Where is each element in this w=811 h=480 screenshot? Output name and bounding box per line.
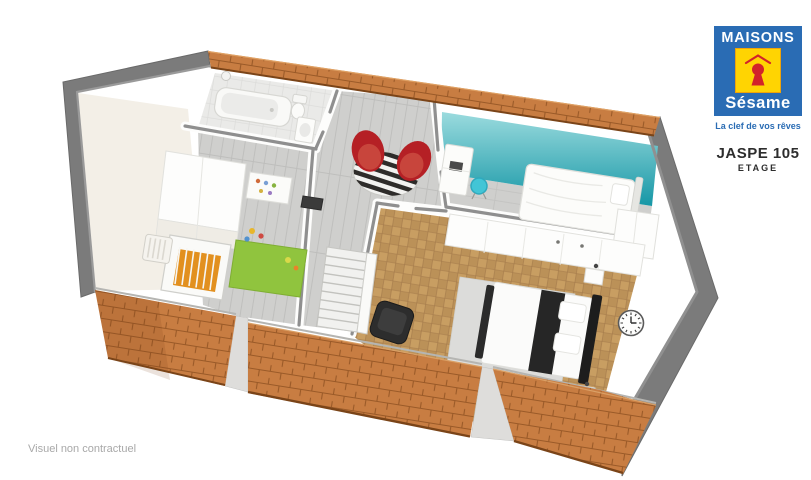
logo-tagline: La clef de vos rêves: [706, 121, 810, 131]
bedside-lamp: [594, 264, 598, 268]
page: { "window": {"width": 811, "height": 480…: [0, 0, 811, 480]
logo-word-sesame: Sésame: [725, 95, 790, 112]
toy: [294, 266, 299, 271]
wall-lamp: [580, 244, 584, 248]
child-wardrobe-top: [158, 151, 246, 232]
washbasin: [294, 117, 316, 144]
model-name: JASPE 105: [706, 145, 810, 162]
bedside-lamp: [585, 382, 589, 386]
teal-desk-chair: [471, 178, 487, 194]
logo-yellow-square: [735, 48, 781, 93]
radiator-body: [142, 234, 173, 264]
wall-lamp: [556, 240, 560, 244]
nightstand: [584, 268, 604, 285]
pillow: [553, 333, 582, 355]
pillow: [558, 301, 587, 323]
keyhole-circle: [752, 64, 764, 76]
door-mat: [301, 196, 323, 210]
keyhole-stem: [752, 75, 765, 86]
radiator: [142, 234, 173, 264]
toy: [249, 228, 255, 234]
toy: [268, 191, 272, 195]
roof-outline: [746, 56, 770, 64]
pillow: [610, 183, 630, 205]
toy: [258, 233, 263, 238]
toilet-tank: [292, 94, 307, 104]
toy: [285, 257, 291, 263]
brand-block: MAISONS Sésame La clef de vos rêves JASP…: [706, 26, 810, 173]
toy-shelf: [246, 172, 292, 204]
toy: [259, 189, 263, 193]
toy: [272, 183, 276, 187]
keyhole-icon: [738, 50, 778, 90]
shower-head: [222, 72, 231, 81]
toy: [244, 236, 249, 241]
floorplan-3d-render: [0, 0, 811, 480]
disclaimer-text: Visuel non contractuel: [28, 443, 136, 455]
model-floor-label: ETAGE: [706, 163, 810, 173]
logo-word-maisons: MAISONS: [721, 31, 794, 46]
toy: [256, 179, 260, 183]
maisons-sesame-logo: MAISONS Sésame: [714, 26, 802, 116]
toy: [264, 181, 268, 185]
